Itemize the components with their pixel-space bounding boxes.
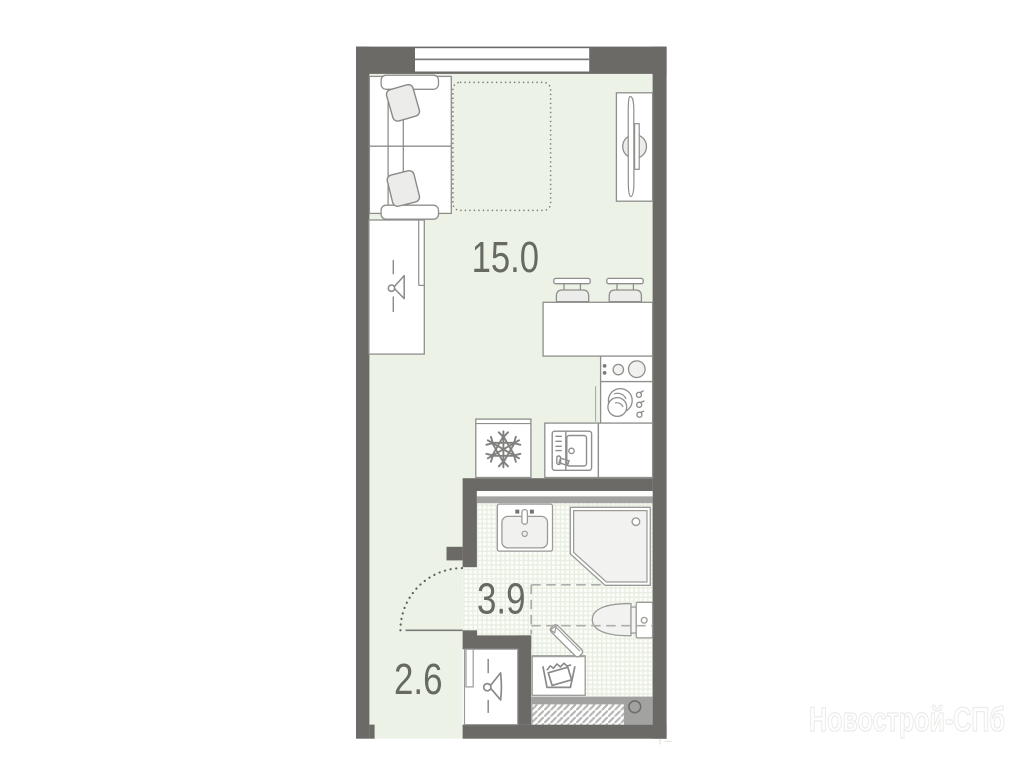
svg-text:15.0: 15.0 xyxy=(472,233,539,282)
svg-text:Новострой-СПб: Новострой-СПб xyxy=(809,701,1005,739)
svg-text:2.6: 2.6 xyxy=(394,655,443,704)
svg-text:3.9: 3.9 xyxy=(477,574,526,623)
